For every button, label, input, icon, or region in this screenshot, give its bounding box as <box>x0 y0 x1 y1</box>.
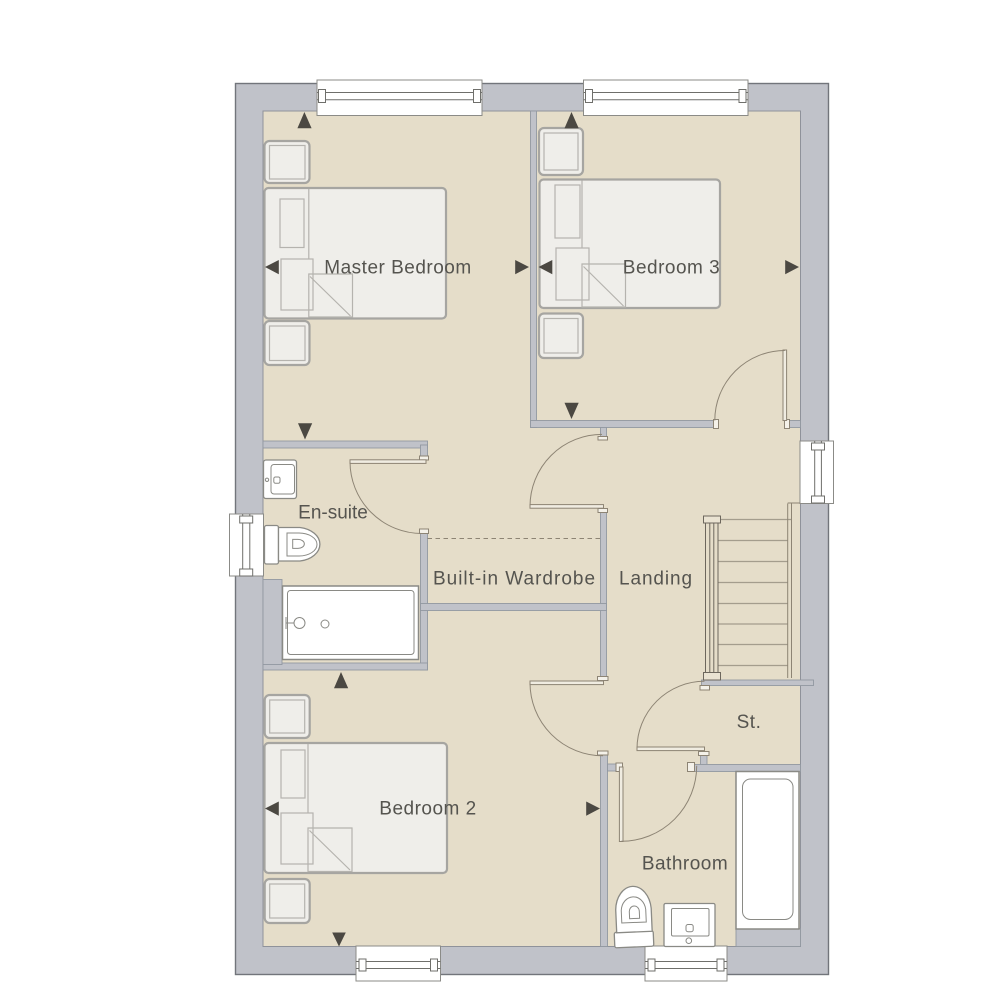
svg-text:Bathroom: Bathroom <box>642 854 728 875</box>
svg-text:Master Bedroom: Master Bedroom <box>324 258 471 279</box>
svg-text:Built-in Wardrobe: Built-in Wardrobe <box>433 569 596 590</box>
svg-text:Bedroom 2: Bedroom 2 <box>379 799 476 820</box>
svg-text:St.: St. <box>737 712 762 733</box>
svg-text:En-suite: En-suite <box>298 503 368 524</box>
svg-text:Landing: Landing <box>619 569 693 590</box>
svg-text:Bedroom 3: Bedroom 3 <box>623 258 720 279</box>
